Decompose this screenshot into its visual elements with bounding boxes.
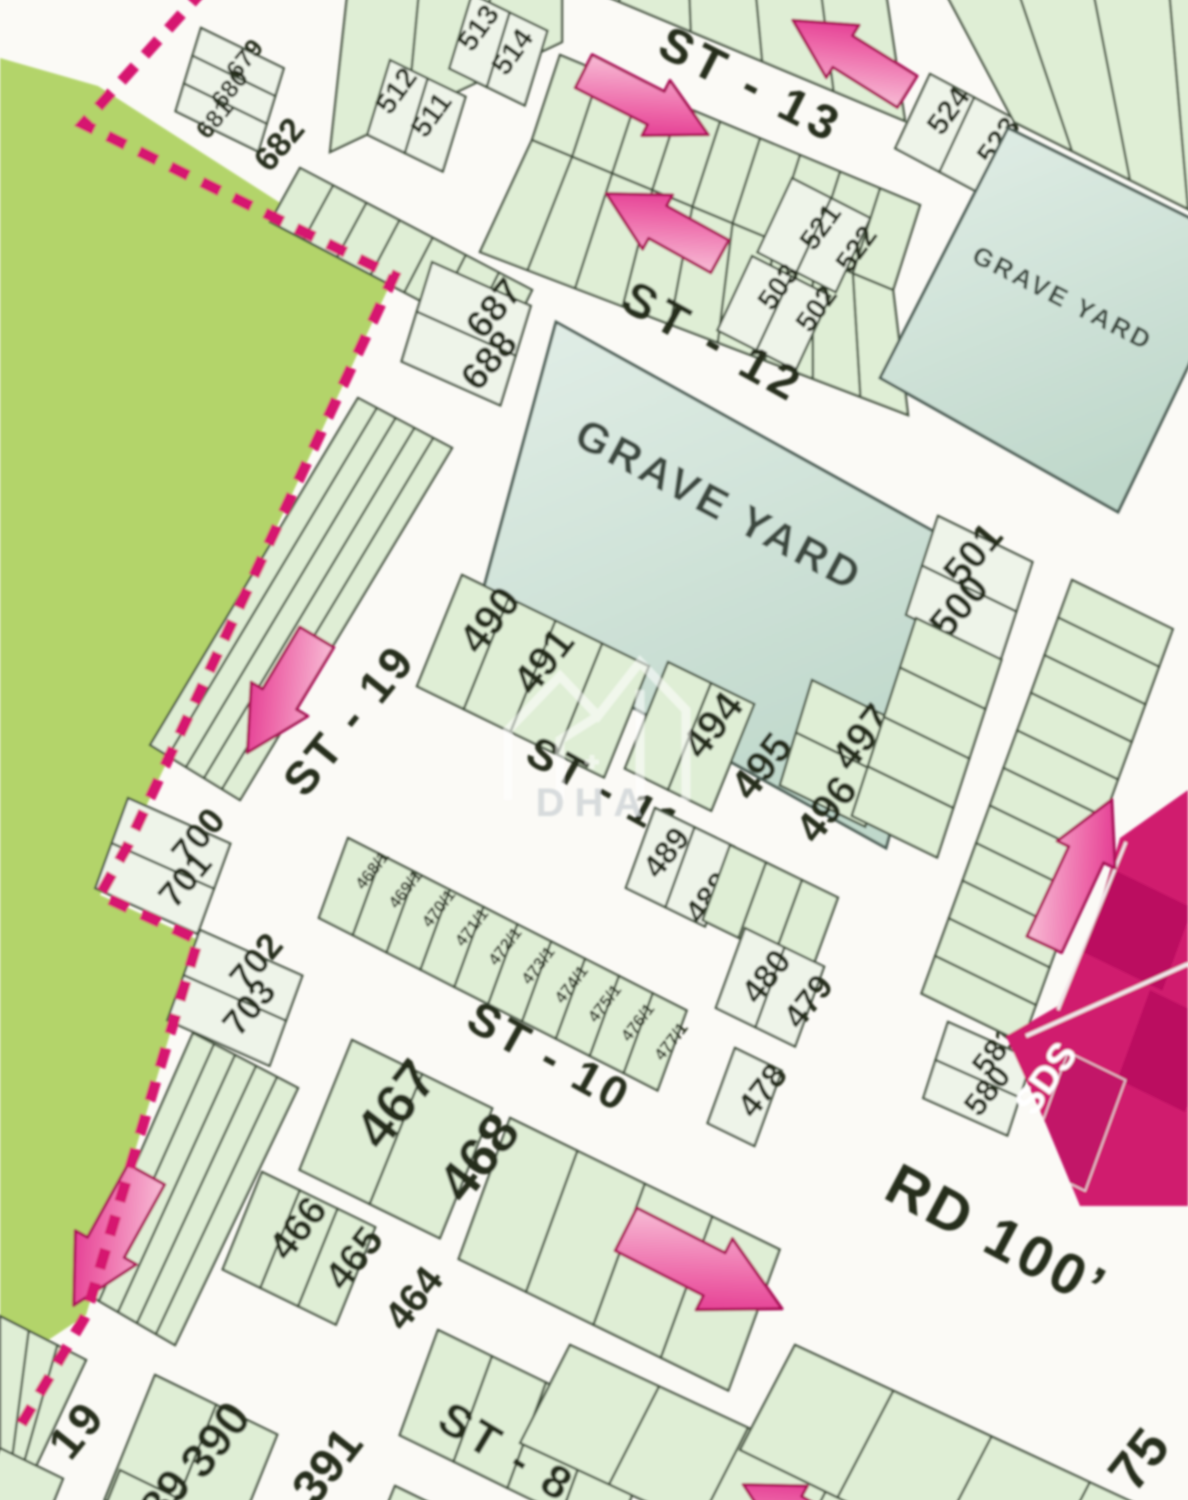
svg-text:DHA: DHA	[536, 781, 653, 825]
